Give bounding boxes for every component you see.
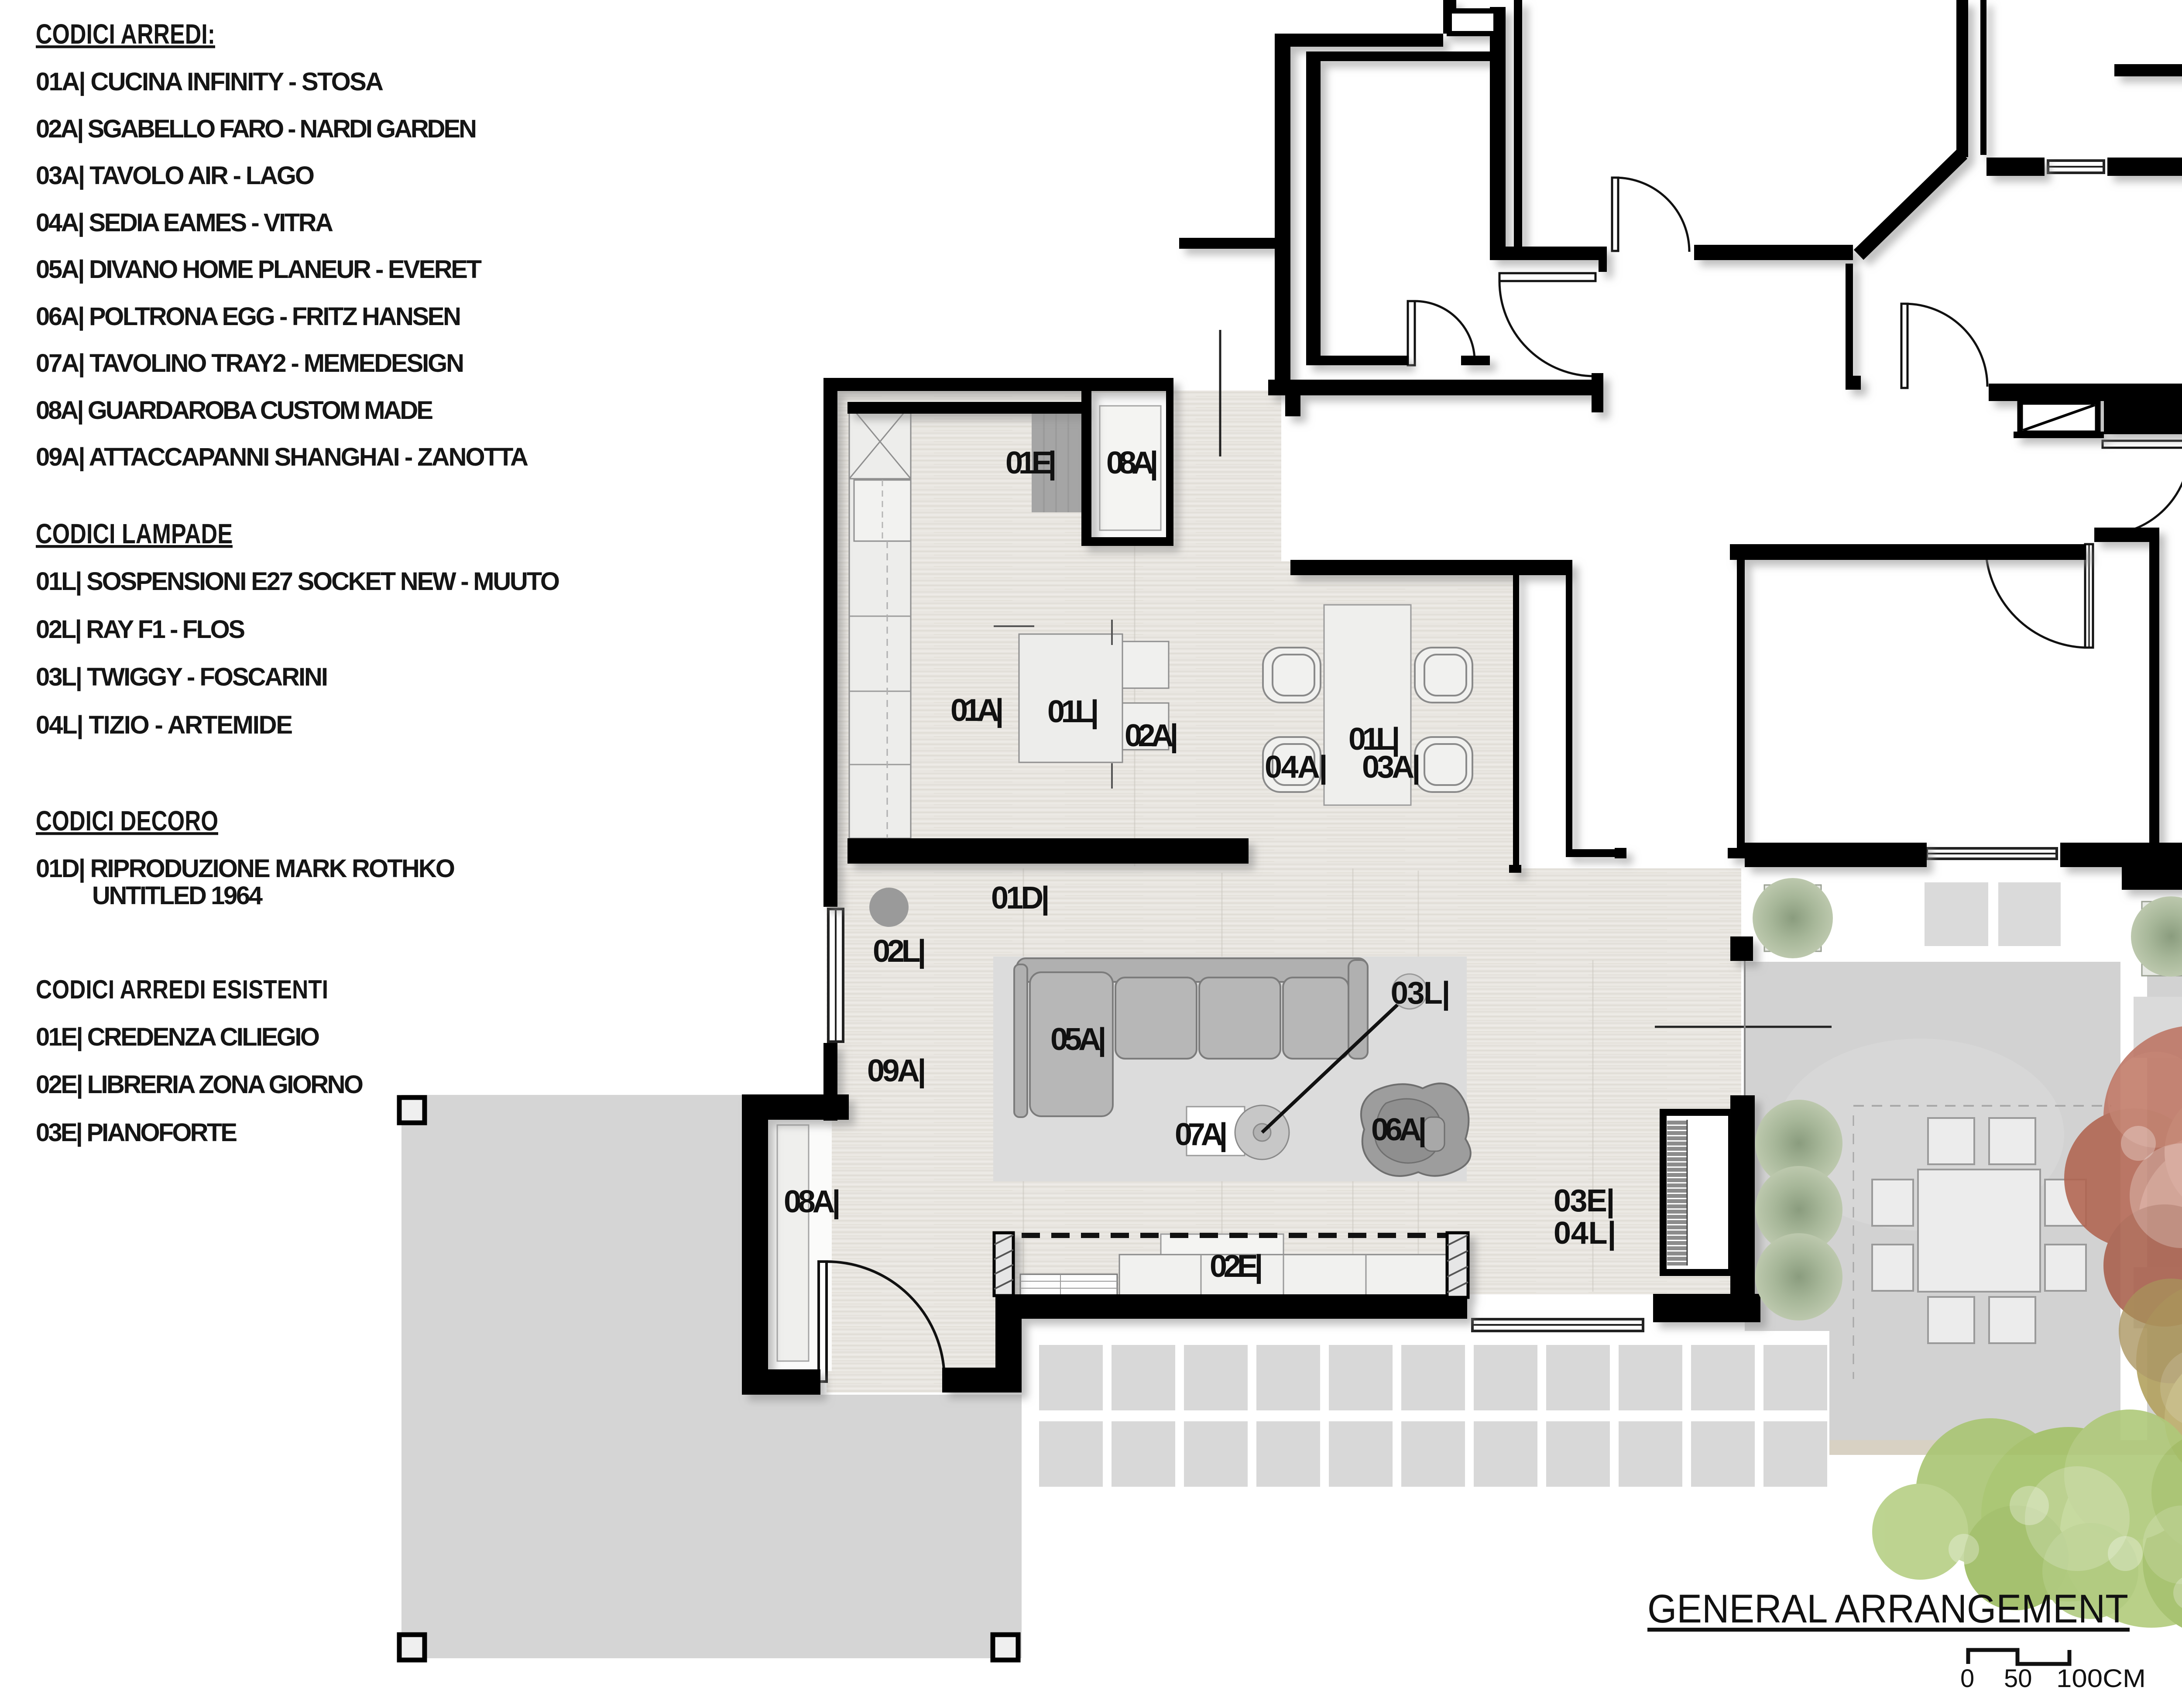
svg-text:UNTITLED 1964: UNTITLED 1964 xyxy=(92,881,263,910)
svg-text:03A|: 03A| xyxy=(1362,750,1422,785)
svg-text:CODICI ARREDI:: CODICI ARREDI: xyxy=(36,18,215,50)
svg-text:GENERAL ARRANGEMENT: GENERAL ARRANGEMENT xyxy=(1647,1587,2128,1631)
svg-text:05A| DIVANO HOME PLANEUR - EVE: 05A| DIVANO HOME PLANEUR - EVERET xyxy=(36,255,482,284)
svg-text:50: 50 xyxy=(2004,1664,2032,1693)
svg-text:05A|: 05A| xyxy=(1050,1022,1108,1057)
svg-text:01D|: 01D| xyxy=(991,881,1051,916)
svg-text:02A| SGABELLO FARO - NARDI GAR: 02A| SGABELLO FARO - NARDI GARDEN xyxy=(36,115,477,143)
svg-text:04L|: 04L| xyxy=(1554,1216,1617,1251)
svg-text:09A| ATTACCAPANNI SHANGHAI - Z: 09A| ATTACCAPANNI SHANGHAI - ZANOTTA xyxy=(36,443,528,471)
svg-text:03A| TAVOLO AIR - LAGO: 03A| TAVOLO AIR - LAGO xyxy=(36,161,315,190)
svg-text:01E| CREDENZA CILIEGIO: 01E| CREDENZA CILIEGIO xyxy=(36,1023,320,1051)
svg-text:02E| LIBRERIA ZONA GIORNO: 02E| LIBRERIA ZONA GIORNO xyxy=(36,1070,364,1099)
svg-text:01L| SOSPENSIONI E27 SOCKET NE: 01L| SOSPENSIONI E27 SOCKET NEW - MUUTO xyxy=(36,567,560,596)
svg-text:CODICI ARREDI ESISTENTI: CODICI ARREDI ESISTENTI xyxy=(36,975,328,1004)
svg-text:02L|: 02L| xyxy=(873,934,927,969)
svg-text:06A| POLTRONA EGG - FRITZ HANS: 06A| POLTRONA EGG - FRITZ HANSEN xyxy=(36,302,461,331)
svg-text:02L| RAY F1 - FLOS: 02L| RAY F1 - FLOS xyxy=(36,615,245,644)
svg-text:01D| RIPRODUZIONE MARK ROTHKO: 01D| RIPRODUZIONE MARK ROTHKO xyxy=(36,854,455,883)
svg-text:01L|: 01L| xyxy=(1047,694,1100,729)
svg-text:07A|: 07A| xyxy=(1175,1117,1229,1152)
svg-text:08A|: 08A| xyxy=(784,1184,842,1219)
svg-text:07A| TAVOLINO TRAY2 - MEMEDESI: 07A| TAVOLINO TRAY2 - MEMEDESIGN xyxy=(36,349,464,377)
svg-text:01A|: 01A| xyxy=(950,693,1005,728)
svg-text:CODICI LAMPADE: CODICI LAMPADE xyxy=(36,518,233,549)
svg-text:100CM: 100CM xyxy=(2056,1664,2146,1693)
svg-text:04A| SEDIA EAMES - VITRA: 04A| SEDIA EAMES - VITRA xyxy=(36,209,333,237)
svg-text:01A| CUCINA INFINITY - STOSA: 01A| CUCINA INFINITY - STOSA xyxy=(36,68,384,96)
svg-text:02E|: 02E| xyxy=(1210,1249,1264,1284)
svg-text:03E|: 03E| xyxy=(1554,1183,1616,1218)
svg-text:04A|: 04A| xyxy=(1265,750,1329,785)
svg-text:0: 0 xyxy=(1960,1664,1974,1693)
svg-text:03L| TWIGGY - FOSCARINI: 03L| TWIGGY - FOSCARINI xyxy=(36,663,328,691)
svg-text:CODICI DECORO: CODICI DECORO xyxy=(36,805,218,837)
svg-text:08A| GUARDAROBA CUSTOM MADE: 08A| GUARDAROBA CUSTOM MADE xyxy=(36,396,433,425)
svg-text:06A|: 06A| xyxy=(1371,1112,1428,1147)
svg-text:03L|: 03L| xyxy=(1391,976,1451,1011)
svg-text:08A|: 08A| xyxy=(1106,446,1160,480)
svg-text:02A|: 02A| xyxy=(1125,718,1180,753)
svg-text:01E|: 01E| xyxy=(1005,446,1058,480)
svg-text:09A|: 09A| xyxy=(867,1053,927,1088)
svg-text:04L| TIZIO - ARTEMIDE: 04L| TIZIO - ARTEMIDE xyxy=(36,711,293,739)
svg-text:03E| PIANOFORTE: 03E| PIANOFORTE xyxy=(36,1118,237,1147)
